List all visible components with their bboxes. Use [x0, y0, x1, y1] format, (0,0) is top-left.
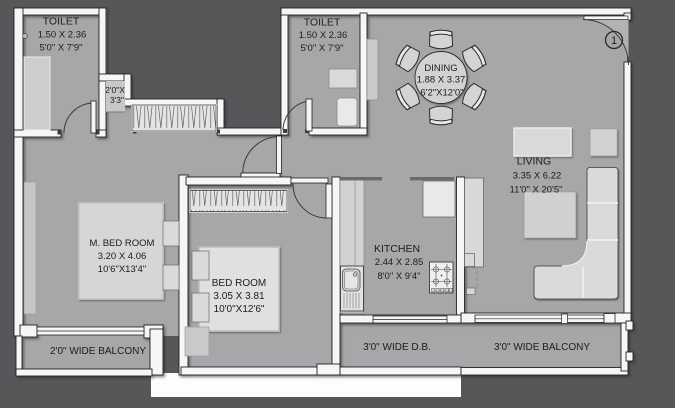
svg-text:5'0" X 7'9": 5'0" X 7'9"	[300, 43, 343, 54]
svg-text:3.05 X 3.81: 3.05 X 3.81	[213, 291, 265, 302]
svg-text:3.20 X 4.06: 3.20 X 4.06	[98, 251, 147, 262]
svg-text:LIVING: LIVING	[517, 156, 551, 168]
svg-text:TOILET: TOILET	[43, 16, 80, 28]
svg-text:3'0" WIDE BALCONY: 3'0" WIDE BALCONY	[494, 342, 590, 353]
svg-text:M. BED ROOM: M. BED ROOM	[90, 238, 155, 249]
svg-text:DINING: DINING	[424, 63, 457, 74]
svg-text:5'0" X 7'9": 5'0" X 7'9"	[39, 43, 82, 54]
svg-text:3'0" WIDE D.B.: 3'0" WIDE D.B.	[363, 342, 431, 353]
svg-text:1: 1	[611, 35, 617, 47]
svg-text:6'2"X12'0": 6'2"X12'0"	[420, 88, 463, 99]
svg-text:TOILET: TOILET	[304, 17, 341, 29]
svg-text:3'3": 3'3"	[110, 95, 124, 105]
svg-text:11'0" X 20'5": 11'0" X 20'5"	[510, 185, 563, 196]
svg-text:1.50 X 2.36: 1.50 X 2.36	[299, 30, 348, 41]
svg-text:10'0"X12'6": 10'0"X12'6"	[214, 304, 265, 315]
svg-text:BED ROOM: BED ROOM	[212, 278, 266, 289]
svg-text:KITCHEN: KITCHEN	[374, 243, 420, 255]
svg-text:10'6"X13'4": 10'6"X13'4"	[98, 264, 146, 275]
svg-text:2.44 X 2.85: 2.44 X 2.85	[375, 257, 424, 268]
svg-text:8'0" X 9'4": 8'0" X 9'4"	[377, 271, 420, 282]
svg-text:1.88 X 3.37: 1.88 X 3.37	[417, 75, 466, 86]
svg-text:2'0"X: 2'0"X	[105, 85, 125, 95]
svg-text:3.35 X 6.22: 3.35 X 6.22	[513, 171, 562, 182]
svg-text:2'0" WIDE BALCONY: 2'0" WIDE BALCONY	[50, 346, 146, 357]
svg-text:1.50 X 2.36: 1.50 X 2.36	[38, 30, 87, 41]
